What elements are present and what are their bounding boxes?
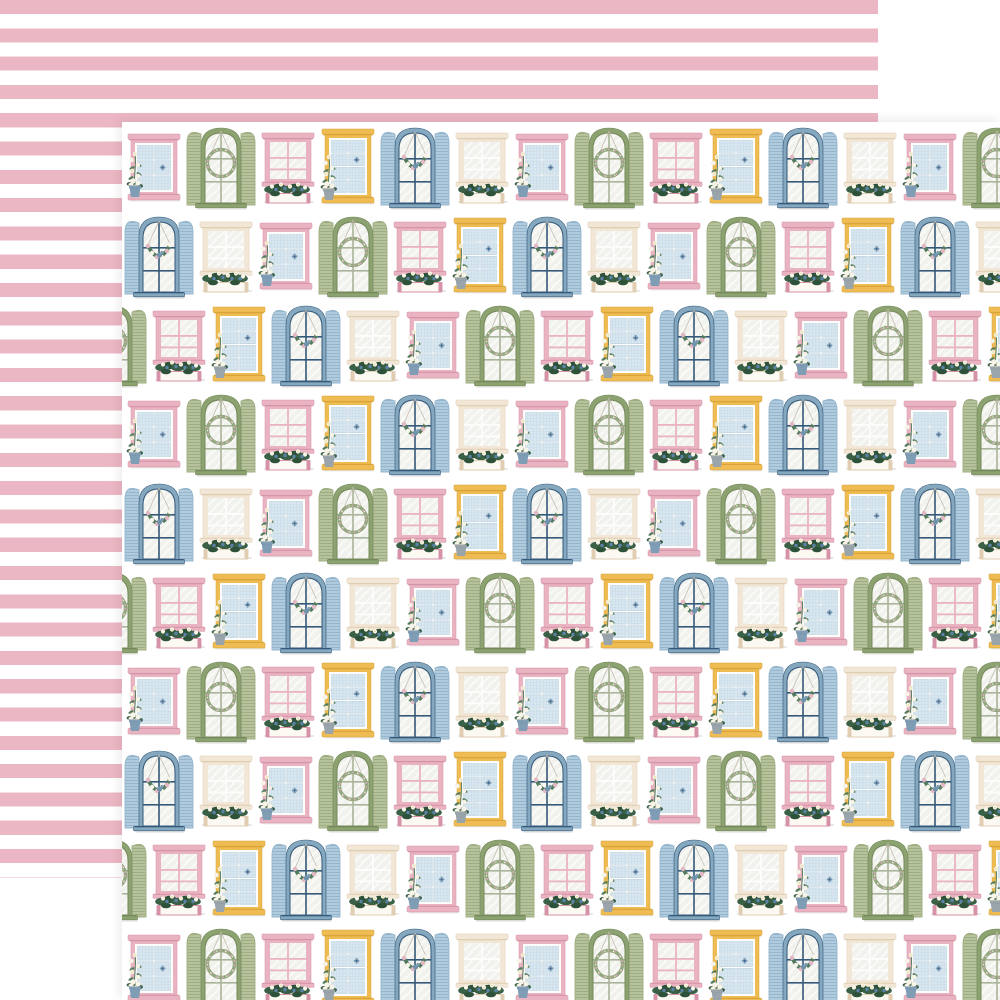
window-motif-yellow-pot	[988, 574, 1000, 649]
window-motif-pink-box	[262, 400, 314, 470]
window-motif-cream-box	[735, 311, 787, 381]
window-motif-green-arch	[963, 929, 1000, 1000]
window-motif-green-arch	[466, 840, 534, 922]
window-motif-pink-pot	[903, 134, 956, 201]
window-motif-pink-box	[153, 578, 205, 648]
window-motif-green-arch	[963, 662, 1000, 744]
window-motif-green-arch	[854, 306, 922, 388]
window-motif-yellow-pot	[709, 663, 762, 738]
window-motif-green-arch	[707, 217, 775, 299]
window-motif-cream-box	[976, 489, 1000, 559]
window-motif-yellow-pot	[988, 841, 1000, 916]
window-motif-blue-arch	[660, 306, 728, 388]
window-motif-pink-pot	[127, 935, 180, 1000]
window-motif-blue-arch	[272, 306, 340, 388]
window-motif-green-arch	[575, 128, 643, 210]
window-motif-green-arch	[319, 484, 387, 566]
window-motif-cream-box	[456, 667, 508, 737]
window-motif-blue-arch	[272, 573, 340, 655]
window-motif-cream-box	[200, 222, 252, 292]
window-motif-blue-arch	[901, 217, 969, 299]
window-motif-pink-box	[650, 667, 702, 737]
window-motif-yellow-pot	[600, 841, 653, 916]
window-motif-cream-box	[456, 133, 508, 203]
window-motif-yellow-pot	[709, 930, 762, 1000]
window-motif-cream-box	[456, 934, 508, 1000]
window-motif-cream-box	[588, 756, 640, 826]
window-motif-pink-box	[394, 756, 446, 826]
windows-paper-sheet	[122, 122, 1000, 1000]
window-motif-cream-box	[735, 845, 787, 915]
window-motif-green-arch	[319, 751, 387, 833]
window-motif-cream-box	[844, 667, 896, 737]
window-motif-yellow-pot	[841, 485, 894, 560]
window-motif-green-arch	[963, 128, 1000, 210]
window-motif-pink-pot	[515, 935, 568, 1000]
window-motif-blue-arch	[381, 395, 449, 477]
window-motif-blue-arch	[513, 217, 581, 299]
window-motif-pink-pot	[406, 312, 459, 379]
window-motif-blue-arch	[513, 484, 581, 566]
window-motif-pink-box	[929, 311, 981, 381]
window-motif-blue-arch	[125, 217, 193, 299]
window-motif-green-arch	[319, 217, 387, 299]
window-motif-yellow-pot	[600, 307, 653, 382]
window-motif-pink-pot	[647, 490, 700, 557]
window-motif-green-arch	[575, 662, 643, 744]
window-motif-pink-pot	[406, 846, 459, 913]
window-motif-pink-box	[650, 400, 702, 470]
window-motif-pink-pot	[903, 668, 956, 735]
window-motif-pink-box	[262, 667, 314, 737]
window-motif-blue-arch	[769, 929, 837, 1000]
window-motif-green-arch	[854, 840, 922, 922]
window-motif-yellow-pot	[321, 930, 374, 1000]
window-motif-cream-box	[844, 400, 896, 470]
window-motif-blue-arch	[769, 128, 837, 210]
window-motif-blue-arch	[660, 573, 728, 655]
window-motif-pink-pot	[259, 223, 312, 290]
window-motif-pink-box	[929, 845, 981, 915]
window-motif-blue-arch	[901, 484, 969, 566]
window-motif-green-arch	[575, 395, 643, 477]
window-motif-pink-box	[782, 222, 834, 292]
window-motif-yellow-pot	[988, 307, 1000, 382]
window-motif-cream-box	[347, 845, 399, 915]
window-motif-blue-arch	[769, 395, 837, 477]
window-motif-pink-box	[541, 311, 593, 381]
window-motif-pink-pot	[794, 312, 847, 379]
window-motif-green-arch	[707, 484, 775, 566]
window-motif-pink-pot	[259, 757, 312, 824]
window-motif-cream-box	[347, 311, 399, 381]
window-motif-yellow-pot	[212, 574, 265, 649]
window-motif-green-arch	[466, 573, 534, 655]
window-motif-blue-arch	[769, 662, 837, 744]
window-motif-blue-arch	[381, 128, 449, 210]
cottage-windows-pattern	[122, 122, 1000, 1000]
scrapbook-paper-product-photo	[0, 0, 1000, 1000]
window-motif-cream-box	[844, 934, 896, 1000]
window-motif-blue-arch	[381, 929, 449, 1000]
window-motif-pink-box	[782, 756, 834, 826]
window-motif-pink-pot	[794, 579, 847, 646]
window-motif-pink-box	[782, 489, 834, 559]
window-motif-blue-arch	[660, 840, 728, 922]
window-motif-green-arch	[187, 395, 255, 477]
window-motif-yellow-pot	[841, 752, 894, 827]
window-motif-green-arch	[122, 573, 146, 655]
window-motif-yellow-pot	[709, 129, 762, 204]
window-motif-green-arch	[187, 662, 255, 744]
window-motif-green-arch	[187, 128, 255, 210]
window-motif-cream-box	[735, 578, 787, 648]
window-motif-cream-box	[976, 222, 1000, 292]
window-motif-pink-pot	[515, 134, 568, 201]
window-motif-cream-box	[200, 489, 252, 559]
window-motif-cream-box	[456, 400, 508, 470]
window-motif-yellow-pot	[212, 307, 265, 382]
window-motif-pink-box	[650, 133, 702, 203]
window-motif-pink-pot	[406, 579, 459, 646]
window-motif-pink-pot	[647, 757, 700, 824]
window-motif-yellow-pot	[453, 485, 506, 560]
window-motif-green-arch	[707, 751, 775, 833]
window-motif-yellow-pot	[321, 663, 374, 738]
window-motif-yellow-pot	[321, 396, 374, 471]
window-motif-green-arch	[122, 840, 146, 922]
window-motif-green-arch	[963, 395, 1000, 477]
window-motif-blue-arch	[125, 751, 193, 833]
window-motif-green-arch	[466, 306, 534, 388]
window-motif-blue-arch	[125, 484, 193, 566]
window-motif-yellow-pot	[600, 574, 653, 649]
window-motif-pink-pot	[127, 134, 180, 201]
window-motif-green-arch	[187, 929, 255, 1000]
window-motif-pink-pot	[903, 935, 956, 1000]
window-motif-green-arch	[854, 573, 922, 655]
window-motif-pink-box	[153, 845, 205, 915]
window-motif-pink-pot	[647, 223, 700, 290]
window-motif-yellow-pot	[321, 129, 374, 204]
window-motif-pink-box	[153, 311, 205, 381]
window-motif-pink-box	[394, 489, 446, 559]
window-motif-blue-arch	[381, 662, 449, 744]
window-motif-green-arch	[122, 306, 146, 388]
window-motif-pink-pot	[127, 668, 180, 735]
window-motif-cream-box	[976, 756, 1000, 826]
window-motif-pink-box	[541, 845, 593, 915]
window-motif-pink-box	[262, 934, 314, 1000]
window-motif-pink-pot	[794, 846, 847, 913]
window-motif-yellow-pot	[709, 396, 762, 471]
window-motif-pink-pot	[127, 401, 180, 468]
window-motif-pink-box	[394, 222, 446, 292]
window-motif-pink-pot	[515, 401, 568, 468]
window-motif-cream-box	[588, 222, 640, 292]
window-motif-blue-arch	[272, 840, 340, 922]
window-motif-pink-box	[541, 578, 593, 648]
window-motif-cream-box	[588, 489, 640, 559]
window-motif-pink-box	[650, 934, 702, 1000]
window-motif-yellow-pot	[453, 218, 506, 293]
window-motif-pink-box	[262, 133, 314, 203]
window-motif-cream-box	[844, 133, 896, 203]
window-motif-pink-pot	[259, 490, 312, 557]
window-motif-pink-box	[929, 578, 981, 648]
window-motif-cream-box	[347, 578, 399, 648]
window-motif-pink-pot	[515, 668, 568, 735]
window-motif-blue-arch	[513, 751, 581, 833]
window-motif-yellow-pot	[212, 841, 265, 916]
window-motif-blue-arch	[901, 751, 969, 833]
window-motif-cream-box	[200, 756, 252, 826]
window-motif-pink-pot	[903, 401, 956, 468]
window-motif-yellow-pot	[453, 752, 506, 827]
window-motif-yellow-pot	[841, 218, 894, 293]
window-motif-green-arch	[575, 929, 643, 1000]
